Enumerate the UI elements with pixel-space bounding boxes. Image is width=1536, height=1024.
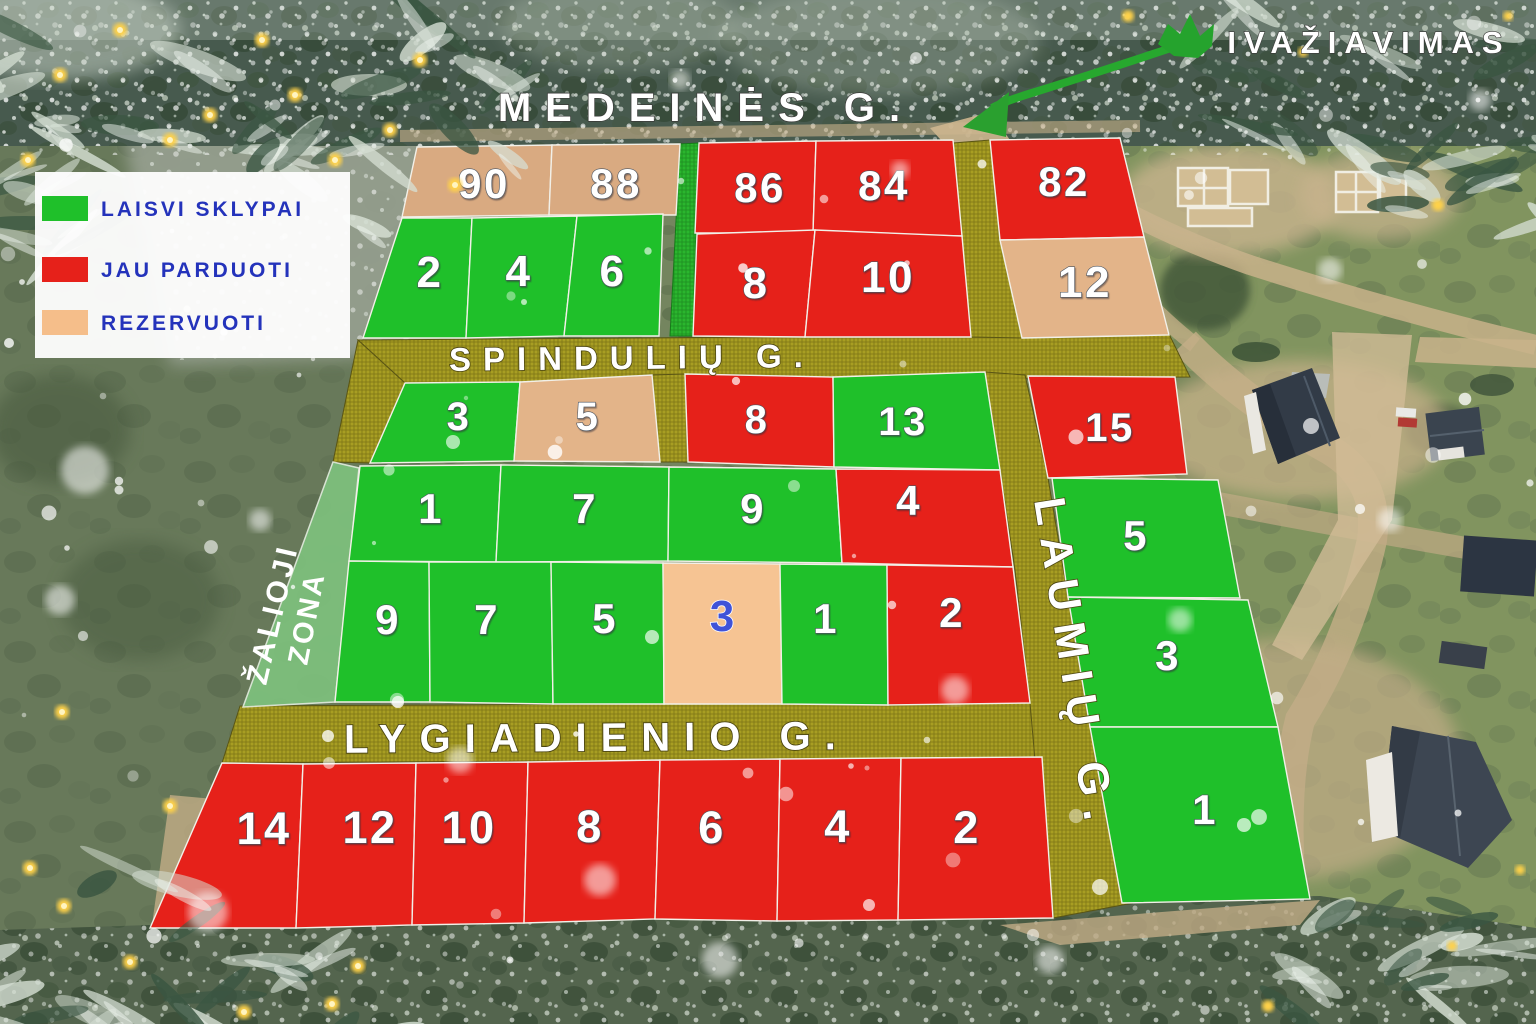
svg-text:SPINDULIŲ G.: SPINDULIŲ G. xyxy=(449,337,815,378)
svg-text:3: 3 xyxy=(447,395,472,439)
svg-text:12: 12 xyxy=(342,802,397,853)
svg-text:9: 9 xyxy=(740,485,766,532)
svg-text:2: 2 xyxy=(417,248,444,297)
svg-text:8: 8 xyxy=(576,801,604,852)
svg-text:1: 1 xyxy=(418,485,444,532)
svg-text:5: 5 xyxy=(1123,512,1149,559)
svg-text:86: 86 xyxy=(734,164,786,211)
svg-text:15: 15 xyxy=(1085,406,1135,450)
svg-text:14: 14 xyxy=(236,803,291,854)
svg-text:13: 13 xyxy=(878,400,928,444)
svg-text:4: 4 xyxy=(506,247,533,296)
svg-text:LAISVI SKLYPAI: LAISVI SKLYPAI xyxy=(101,198,304,221)
svg-text:REZERVUOTI: REZERVUOTI xyxy=(101,312,266,335)
svg-text:5: 5 xyxy=(576,395,601,439)
svg-text:5: 5 xyxy=(592,595,618,642)
svg-text:4: 4 xyxy=(824,801,852,852)
svg-text:LYGIADIENIO G.: LYGIADIENIO G. xyxy=(344,714,850,762)
svg-text:MEDEINĖS G.: MEDEINĖS G. xyxy=(498,86,914,130)
svg-text:4: 4 xyxy=(896,477,922,524)
svg-text:90: 90 xyxy=(458,160,510,207)
svg-text:12: 12 xyxy=(1058,258,1112,307)
svg-text:2: 2 xyxy=(939,589,965,636)
svg-text:82: 82 xyxy=(1038,158,1090,205)
svg-text:3: 3 xyxy=(1155,632,1181,679)
svg-text:1: 1 xyxy=(813,595,839,642)
svg-text:9: 9 xyxy=(375,596,401,643)
svg-text:7: 7 xyxy=(474,596,500,643)
svg-text:10: 10 xyxy=(441,802,496,853)
svg-text:7: 7 xyxy=(572,485,598,532)
svg-text:6: 6 xyxy=(698,802,726,853)
svg-text:1: 1 xyxy=(1192,786,1218,833)
svg-text:8: 8 xyxy=(745,398,770,442)
svg-text:3: 3 xyxy=(710,592,734,641)
svg-text:JAU PARDUOTI: JAU PARDUOTI xyxy=(101,259,293,282)
svg-text:88: 88 xyxy=(590,160,642,207)
svg-text:2: 2 xyxy=(953,802,981,853)
svg-text:6: 6 xyxy=(600,247,627,296)
svg-text:IVAŽIAVIMAS: IVAŽIAVIMAS xyxy=(1227,24,1510,60)
